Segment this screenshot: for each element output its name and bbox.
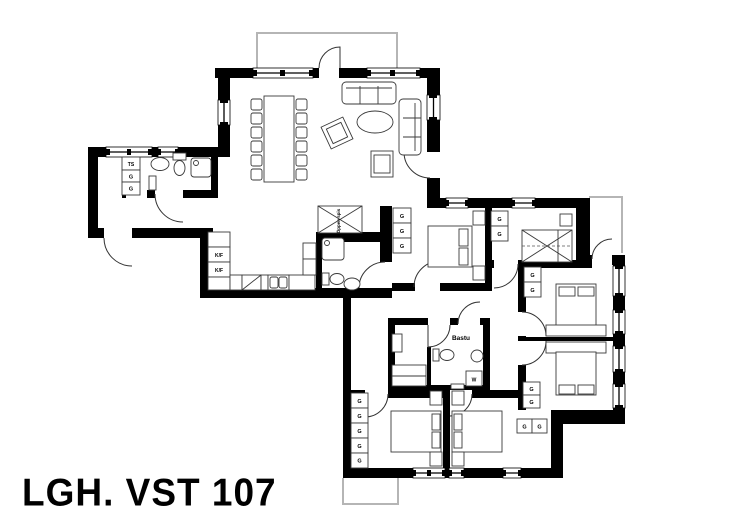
counter [230, 275, 242, 290]
label-g-bathroom-1: G [129, 175, 133, 181]
label-g-bedroom-d-1: G [529, 387, 533, 393]
chair [251, 113, 262, 124]
bench [546, 325, 606, 336]
window [512, 198, 535, 208]
label-g-bedroom-b-1: G [497, 217, 501, 223]
window [427, 95, 440, 120]
pillow [459, 248, 468, 265]
pillow [432, 414, 440, 430]
bedroom-e [351, 391, 442, 468]
chair [296, 155, 307, 166]
toilet-tank [322, 273, 329, 285]
label-oppen-spis: Öppen spis [335, 208, 341, 233]
dining-table [264, 96, 294, 182]
window [613, 384, 625, 408]
nightstand [473, 211, 485, 225]
bathroom [122, 153, 211, 195]
living-room-door-arc [404, 152, 430, 178]
bedroom-a [393, 208, 485, 280]
sauna-bench [392, 334, 402, 352]
counter [303, 259, 316, 275]
label-bastu: Bastu [452, 335, 470, 342]
nightstand [430, 452, 442, 466]
label-g-bedroom-f-1: G [522, 425, 526, 431]
sink [344, 278, 360, 290]
window [613, 346, 625, 372]
label-g-bedroom-e-5: G [357, 459, 361, 465]
sofa [342, 82, 396, 104]
pillow [454, 414, 462, 430]
balcony-outline [257, 33, 397, 68]
kitchen [208, 232, 316, 290]
armchair [321, 117, 353, 149]
label-g-bedroom-c-2: G [530, 288, 534, 294]
nightstand [452, 391, 464, 405]
label-g-bedroom-e-3: G [357, 429, 361, 435]
chair [296, 169, 307, 180]
terrace-outline [589, 197, 622, 253]
toilet-tank [173, 153, 186, 160]
sofa [399, 99, 421, 155]
window [446, 198, 468, 208]
washroom-door-arc [428, 325, 450, 347]
pillow [578, 287, 594, 296]
counter [303, 243, 316, 259]
pillow [559, 287, 575, 296]
label-g-bedroom-e-2: G [357, 414, 361, 420]
chair [251, 169, 262, 180]
toilet [174, 161, 185, 176]
window [613, 266, 625, 296]
chair [251, 155, 262, 166]
label-ts-cabinet: TS [128, 162, 135, 168]
basin [471, 350, 483, 362]
sauna-bench [392, 365, 426, 386]
chair [251, 127, 262, 138]
window [413, 468, 445, 478]
kitchen-cabinet [208, 232, 230, 247]
label-g-bedroom-e-4: G [357, 444, 361, 450]
label-washer: W [472, 378, 477, 384]
window [218, 100, 230, 125]
counter [261, 275, 268, 290]
entry-door-arc [104, 238, 132, 266]
entry-stoop-outline [343, 478, 398, 504]
kitchen-cabinet [208, 277, 230, 290]
bedroom-d [523, 342, 606, 408]
bench [546, 342, 606, 353]
pillow [459, 229, 468, 246]
bathroom-door-arc [155, 194, 183, 222]
floorplan-drawing: TSGGK/FK/FÖppen spisGGGGGGGGGGGGGGGGWBas… [0, 0, 750, 530]
floorplan-page: TSGGK/FK/FÖppen spisGGGGGGGGGGGGGGGGWBas… [0, 0, 750, 530]
label-g-bedroom-c-1: G [530, 273, 534, 279]
window [449, 468, 464, 478]
chair [251, 99, 262, 110]
chair [296, 113, 307, 124]
toilet [440, 350, 454, 361]
bedroom-c [524, 267, 606, 336]
label-g-bedroom-a-2: G [400, 229, 404, 235]
pillow [559, 385, 575, 394]
window [106, 147, 152, 157]
shower-room [322, 238, 360, 290]
nightstand [452, 452, 464, 466]
window [253, 68, 313, 78]
mat [451, 384, 464, 389]
label-g-bedroom-d-2: G [529, 400, 533, 406]
chair [251, 141, 262, 152]
label-g-bedroom-a-1: G [400, 214, 404, 220]
cabinet [149, 176, 156, 190]
chair [296, 127, 307, 138]
pillow [454, 432, 462, 448]
nightstand [560, 214, 572, 226]
pillow [432, 432, 440, 448]
balcony-door-arc [319, 47, 340, 68]
bedroom-b [491, 211, 572, 262]
dining-table-group [251, 96, 307, 182]
toilet [330, 274, 344, 285]
window [613, 310, 625, 334]
window [367, 68, 420, 78]
label-g-bedroom-f-2: G [537, 425, 541, 431]
nightstand [473, 266, 485, 280]
nightstand [430, 391, 442, 405]
label-g-bathroom-2: G [129, 187, 133, 193]
chair [296, 141, 307, 152]
label-g-bedroom-a-3: G [400, 244, 404, 250]
sink [151, 158, 169, 171]
bastu-room [392, 334, 483, 389]
pillow [578, 385, 594, 394]
label-kf-fridge: K/F [215, 253, 223, 259]
window [503, 468, 521, 478]
plan-title: LGH. VST 107 [22, 471, 277, 515]
toilet-tank [433, 349, 439, 361]
label-g-bedroom-b-2: G [497, 232, 501, 238]
counter [289, 275, 315, 290]
label-kf-freezer: K/F [215, 268, 223, 274]
label-g-bedroom-e-1: G [357, 399, 361, 405]
coffee-table [357, 111, 393, 133]
chair [296, 99, 307, 110]
